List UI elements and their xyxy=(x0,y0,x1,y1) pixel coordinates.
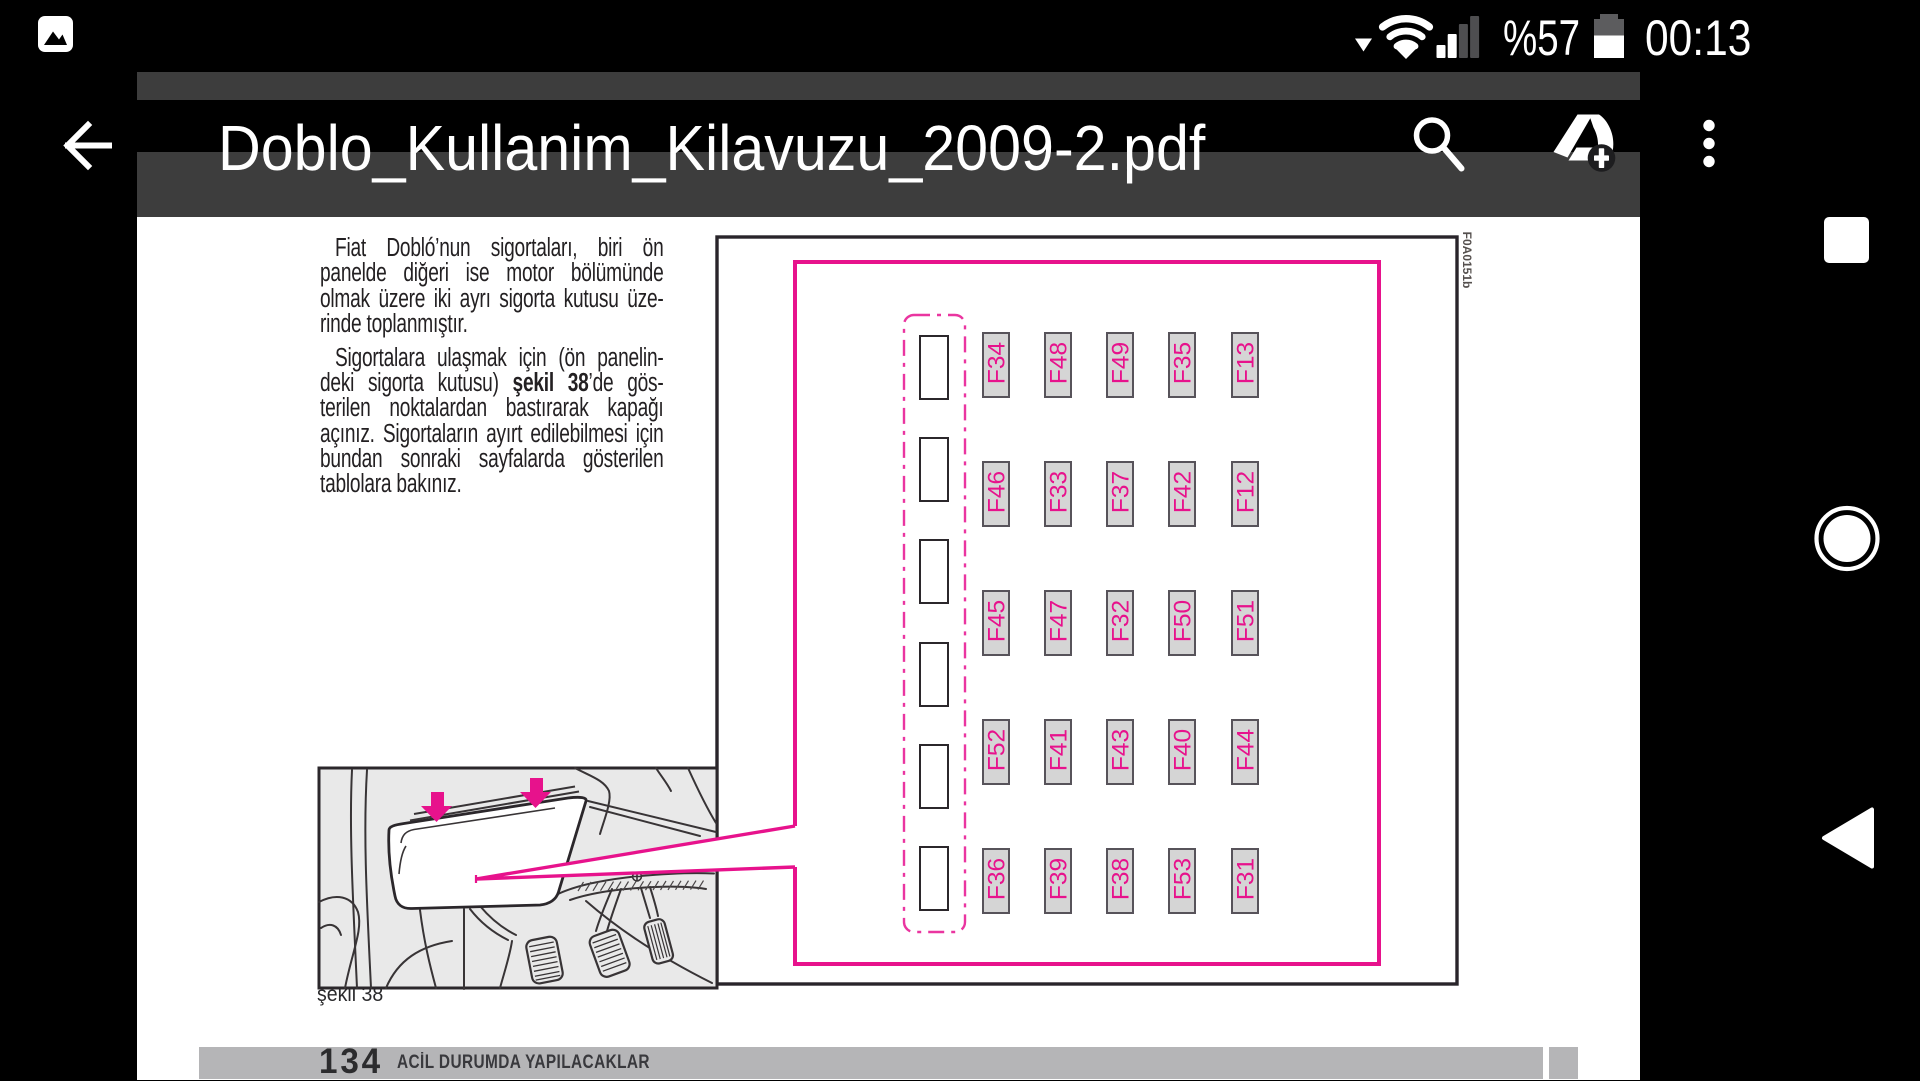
svg-text:F41: F41 xyxy=(1046,729,1073,771)
svg-text:F12: F12 xyxy=(1233,471,1260,513)
svg-text:F32: F32 xyxy=(1108,600,1135,642)
svg-text:F34: F34 xyxy=(984,342,1011,384)
svg-text:F43: F43 xyxy=(1108,729,1135,771)
svg-text:F50: F50 xyxy=(1170,600,1197,642)
svg-text:F31: F31 xyxy=(1233,858,1260,900)
svg-text:F47: F47 xyxy=(1046,600,1073,642)
svg-text:F42: F42 xyxy=(1170,471,1197,513)
svg-text:F46: F46 xyxy=(984,471,1011,513)
svg-text:F52: F52 xyxy=(984,729,1011,771)
svg-text:F53: F53 xyxy=(1170,858,1197,900)
svg-text:F13: F13 xyxy=(1233,342,1260,384)
svg-text:F45: F45 xyxy=(984,600,1011,642)
svg-text:F0A0151b: F0A0151b xyxy=(1460,232,1474,289)
svg-text:F40: F40 xyxy=(1170,729,1197,771)
svg-text:F44: F44 xyxy=(1233,729,1260,771)
svg-text:F36: F36 xyxy=(984,858,1011,900)
svg-text:F48: F48 xyxy=(1046,342,1073,384)
svg-text:F51: F51 xyxy=(1233,600,1260,642)
svg-text:F35: F35 xyxy=(1170,342,1197,384)
svg-text:F49: F49 xyxy=(1108,342,1135,384)
svg-text:F33: F33 xyxy=(1046,471,1073,513)
svg-text:F37: F37 xyxy=(1108,471,1135,513)
svg-text:F38: F38 xyxy=(1108,858,1135,900)
svg-text:F39: F39 xyxy=(1046,858,1073,900)
